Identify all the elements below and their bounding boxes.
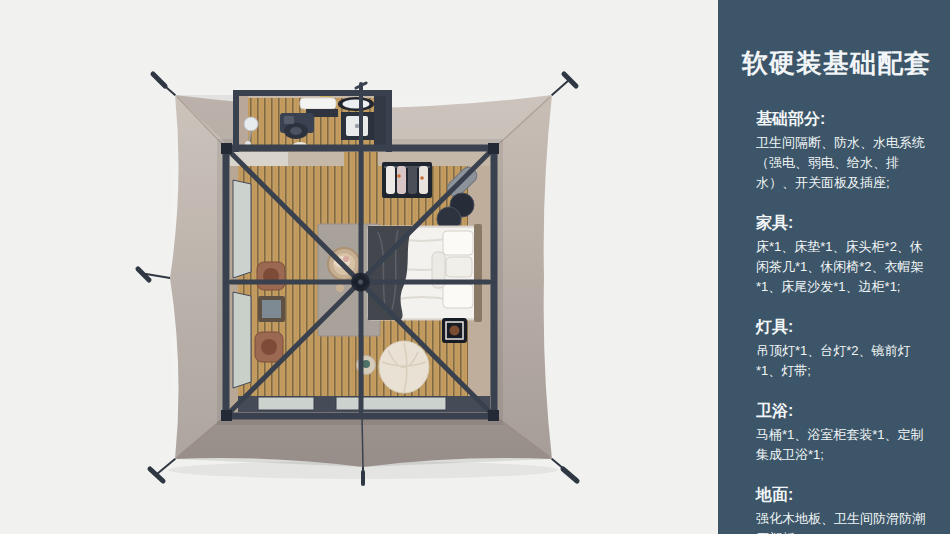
bottom-window: [258, 397, 314, 410]
section-heading: 基础部分:: [756, 109, 930, 130]
pillow: [443, 284, 473, 308]
bottom-window: [336, 397, 446, 410]
section-furniture: 家具: 床*1、床垫*1、床头柜*2、休闲茶几*1、休闲椅*2、衣帽架*1、床尾…: [756, 213, 930, 297]
bathroom-annex: [233, 90, 392, 152]
section-heading: 灯具:: [756, 317, 930, 338]
section-body: 强化木地板、卫生间防滑防潮石塑板;: [756, 509, 930, 534]
tent-floorplan-illustration: [0, 0, 718, 534]
section-body: 卫生间隔断、防水、水电系统（强电、弱电、给水、排水）、开关面板及插座;: [756, 133, 930, 193]
section-lighting: 灯具: 吊顶灯*1、台灯*2、镜前灯*1、灯带;: [756, 317, 930, 381]
left-window: [233, 292, 251, 388]
vanity-sink: [341, 112, 374, 140]
section-body: 床*1、床垫*1、床头柜*2、休闲茶几*1、休闲椅*2、衣帽架*1、床尾沙发*1…: [756, 237, 930, 297]
left-window: [233, 180, 251, 278]
pillow: [446, 257, 472, 277]
leisure-chair: [257, 262, 285, 290]
section-heading: 家具:: [756, 213, 930, 234]
bean-bag: [379, 341, 429, 393]
sidebar-title: 软硬装基础配套: [742, 46, 930, 81]
leisure-chair: [255, 332, 283, 362]
section-basics: 基础部分: 卫生间隔断、防水、水电系统（强电、弱电、给水、排水）、开关面板及插座…: [756, 109, 930, 193]
page: 软硬装基础配套 基础部分: 卫生间隔断、防水、水电系统（强电、弱电、给水、排水）…: [0, 0, 950, 534]
pillow: [443, 231, 473, 255]
section-body: 吊顶灯*1、台灯*2、镜前灯*1、灯带;: [756, 341, 930, 381]
section-heading: 地面:: [756, 485, 930, 506]
tea-table: [258, 296, 285, 322]
tray-table: [442, 318, 467, 343]
section-floor: 地面: 强化木地板、卫生间防滑防潮石塑板;: [756, 485, 930, 534]
section-body: 马桶*1、浴室柜套装*1、定制集成卫浴*1;: [756, 425, 930, 465]
section-bathroom: 卫浴: 马桶*1、浴室柜套装*1、定制集成卫浴*1;: [756, 401, 930, 465]
center-hub: [351, 273, 370, 292]
floorplan-panel: [0, 0, 718, 534]
headboard: [474, 224, 482, 322]
section-heading: 卫浴:: [756, 401, 930, 422]
clothes-rack: [382, 162, 432, 198]
ceiling-light: [300, 98, 336, 109]
spec-sidebar: 软硬装基础配套 基础部分: 卫生间隔断、防水、水电系统（强电、弱电、给水、排水）…: [718, 0, 950, 534]
